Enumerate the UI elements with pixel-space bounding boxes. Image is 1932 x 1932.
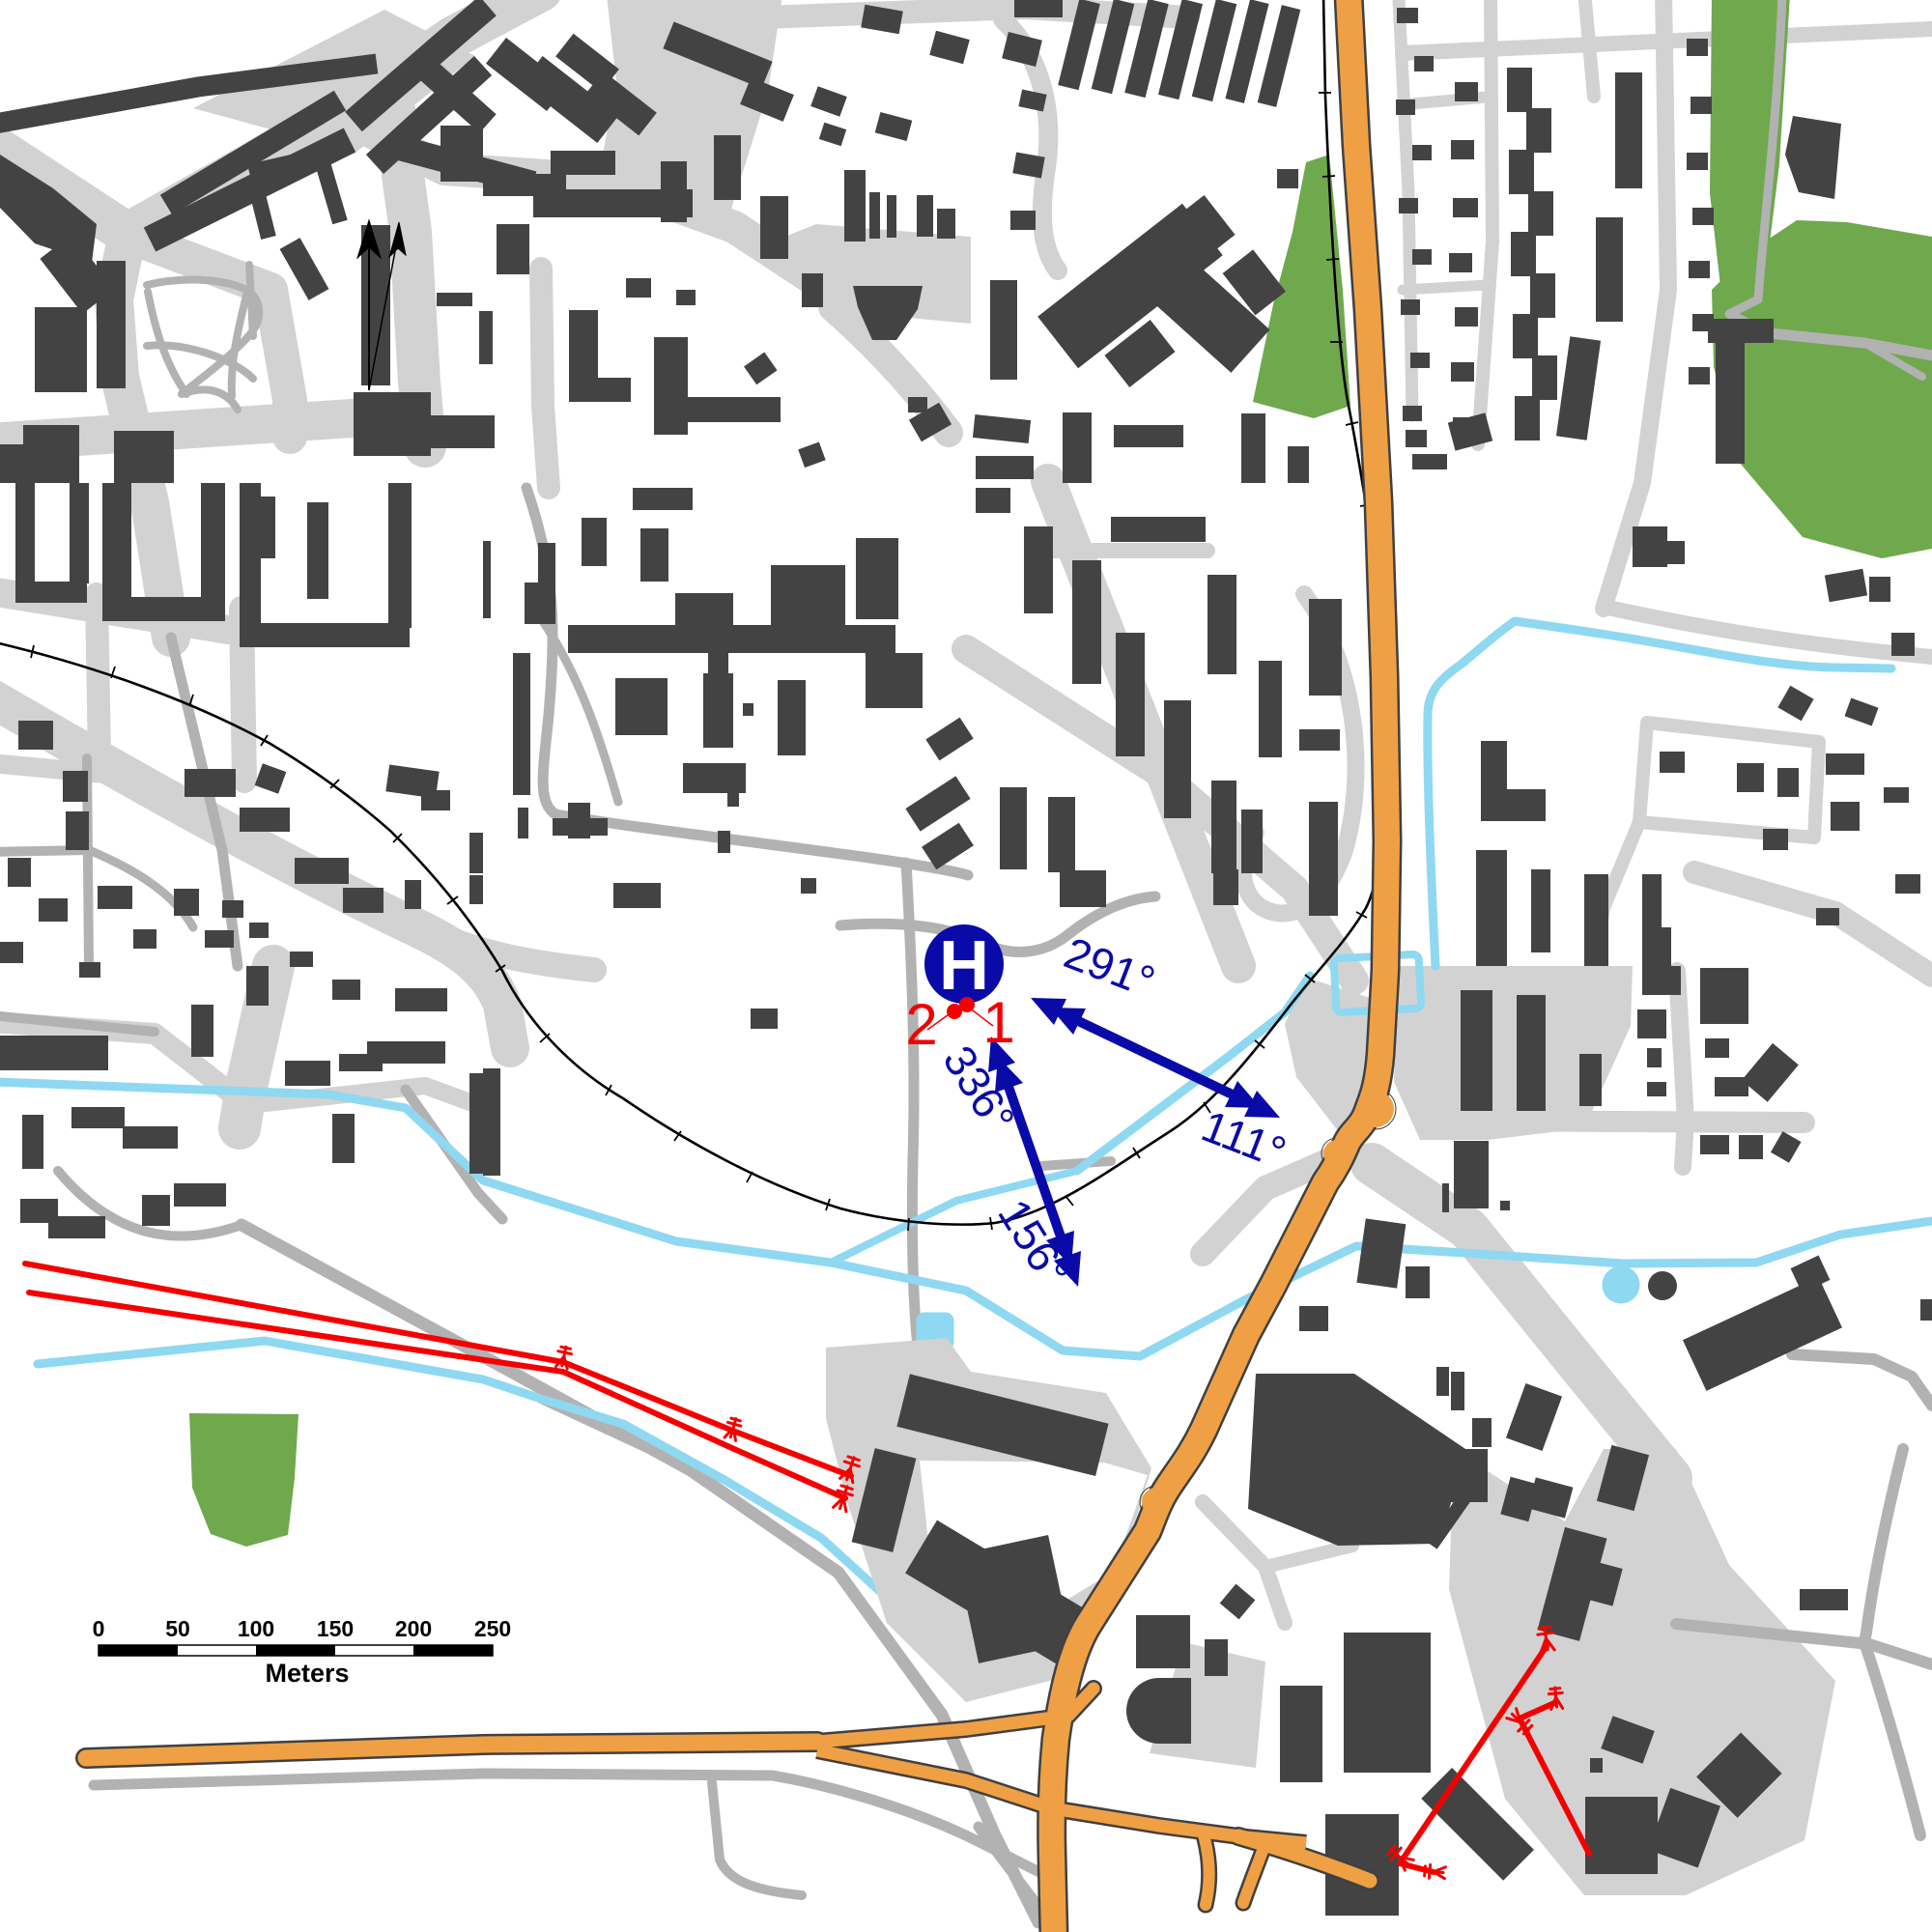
svg-text:100: 100: [238, 1616, 274, 1641]
svg-text:1: 1: [982, 990, 1014, 1055]
svg-text:50: 50: [165, 1616, 190, 1641]
svg-text:Meters: Meters: [265, 1659, 349, 1688]
svg-text:150: 150: [317, 1616, 354, 1641]
svg-text:0: 0: [93, 1616, 105, 1641]
svg-text:H: H: [939, 927, 989, 1005]
svg-text:200: 200: [395, 1616, 432, 1641]
svg-text:2: 2: [905, 992, 937, 1057]
svg-text:250: 250: [474, 1616, 511, 1641]
